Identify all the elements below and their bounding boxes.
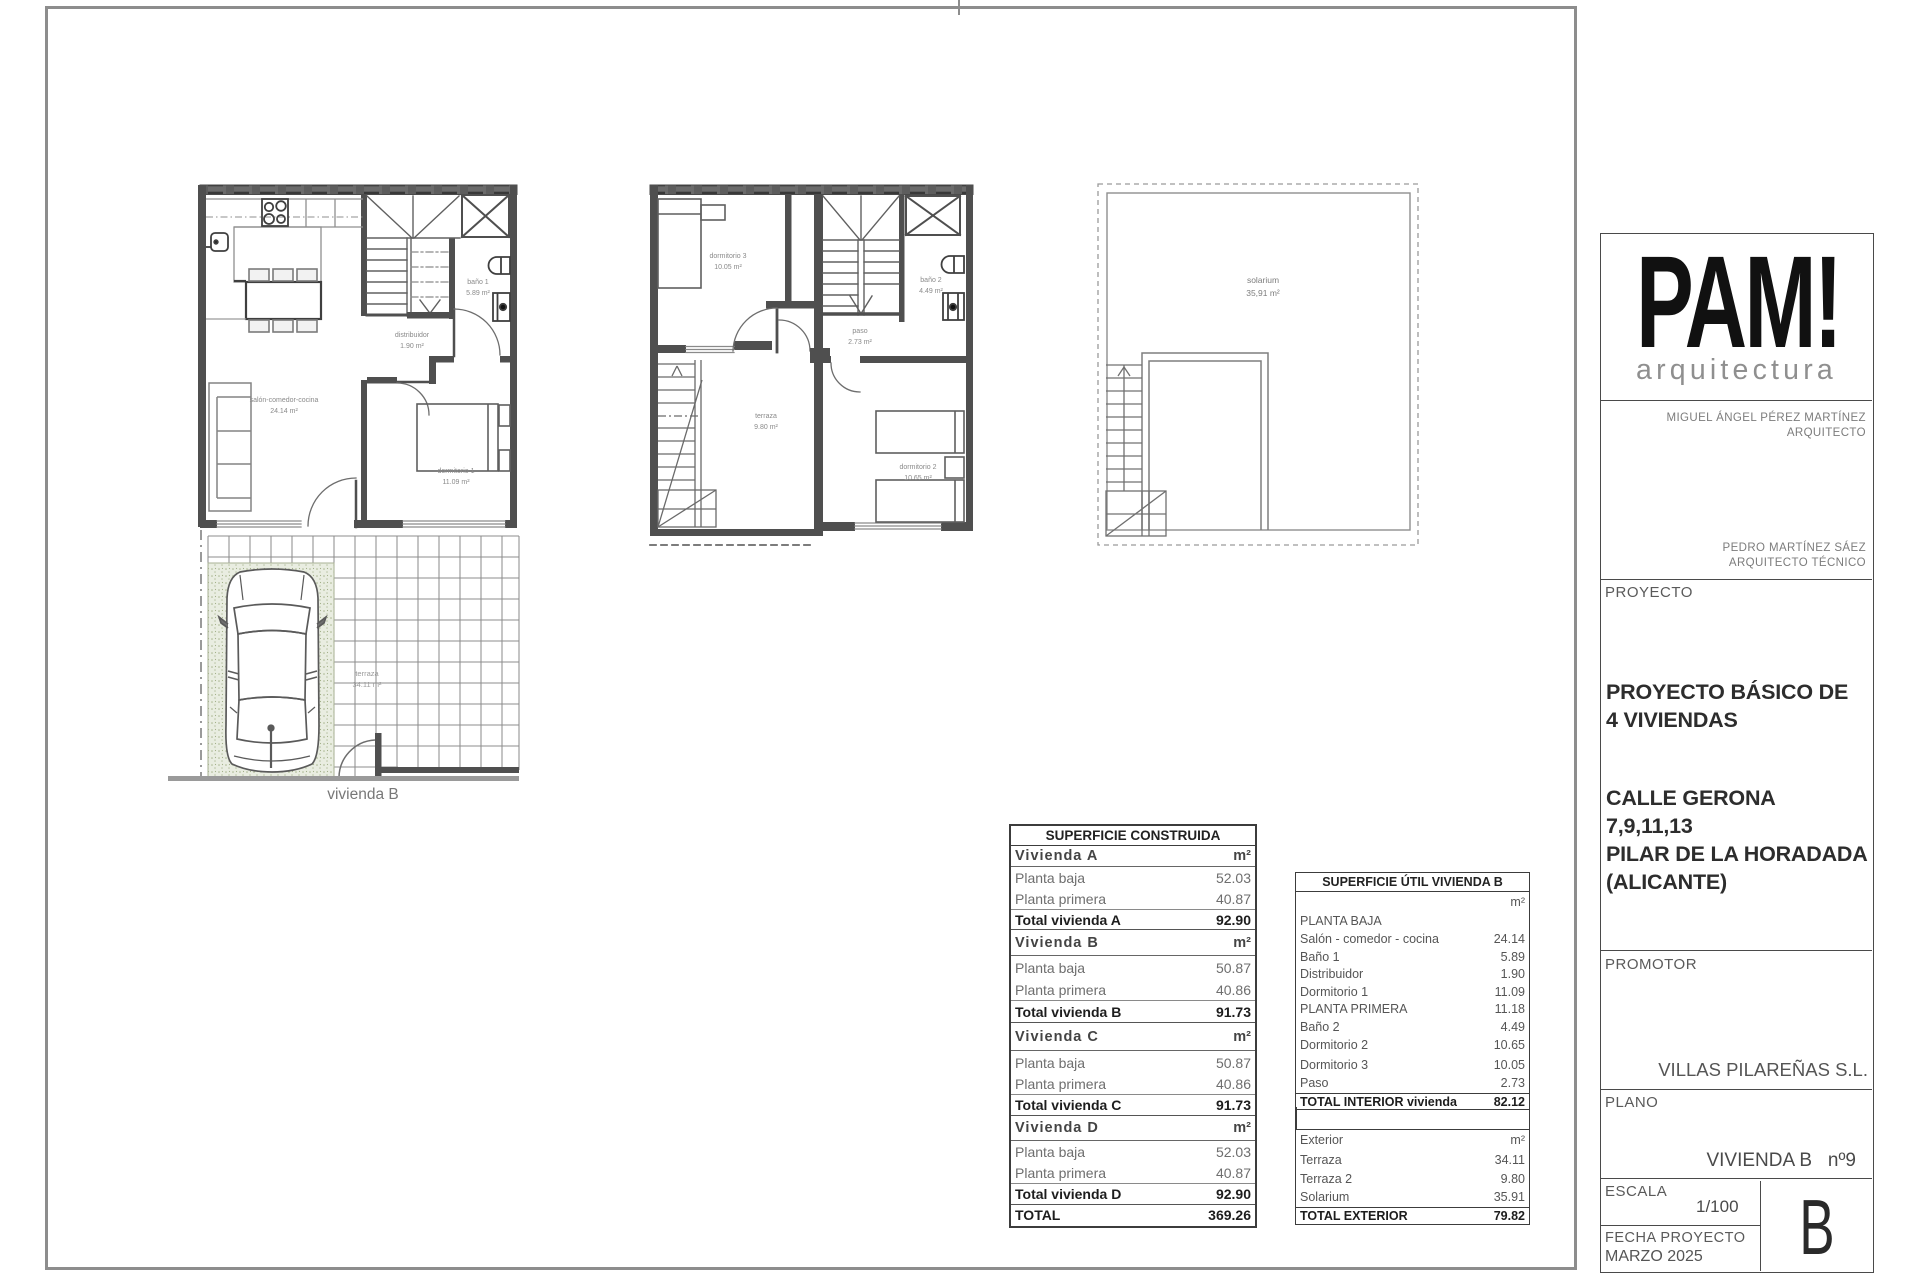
svg-text:5.89 m²: 5.89 m² (466, 290, 490, 297)
svg-text:vivienda B: vivienda B (327, 786, 399, 803)
svg-text:2.73 m²: 2.73 m² (848, 339, 872, 346)
svg-text:35,91 m²: 35,91 m² (1246, 288, 1280, 298)
svg-text:paso: paso (852, 328, 867, 335)
svg-text:baño 1: baño 1 (467, 279, 489, 286)
svg-text:24.14 m²: 24.14 m² (270, 408, 298, 415)
svg-text:1.90 m²: 1.90 m² (400, 343, 424, 350)
svg-text:terraza: terraza (355, 669, 379, 678)
svg-text:terraza: terraza (755, 413, 777, 420)
svg-text:34.11 m²: 34.11 m² (352, 680, 382, 689)
svg-text:dormitorio 2: dormitorio 2 (900, 464, 937, 471)
svg-text:baño 2: baño 2 (920, 277, 942, 284)
svg-text:10.65 m²: 10.65 m² (904, 475, 932, 482)
svg-text:9.80 m²: 9.80 m² (754, 424, 778, 431)
svg-text:10.05 m²: 10.05 m² (714, 264, 742, 271)
svg-text:dormitorio 1: dormitorio 1 (438, 468, 475, 475)
svg-text:11.09 m²: 11.09 m² (442, 479, 470, 486)
svg-text:4.49 m²: 4.49 m² (919, 288, 943, 295)
svg-text:salón-comedor-cocina: salón-comedor-cocina (250, 397, 319, 404)
svg-text:dormitorio 3: dormitorio 3 (710, 253, 747, 260)
svg-text:solarium: solarium (1247, 275, 1279, 285)
svg-text:distribuidor: distribuidor (395, 332, 430, 339)
